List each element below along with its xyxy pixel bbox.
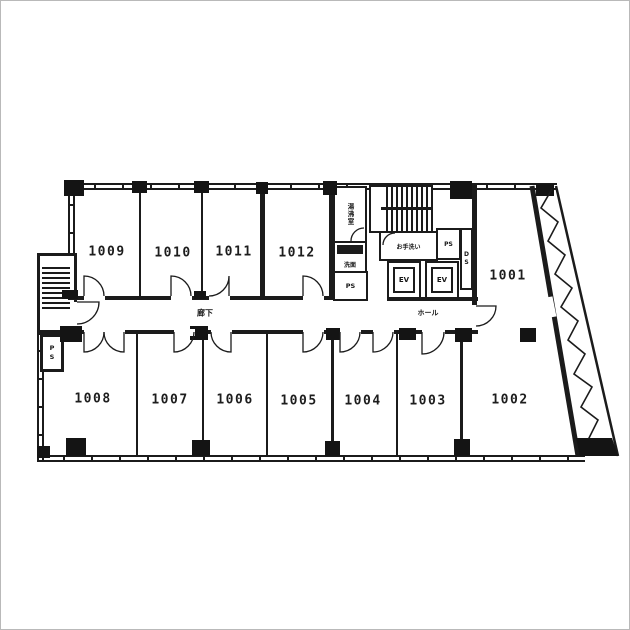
balcony-edge-outer — [556, 186, 618, 456]
room-label-1011: 1011 — [215, 245, 252, 260]
room-label-1010: 1010 — [154, 246, 191, 261]
room-label-1012: 1012 — [278, 246, 315, 261]
door-gaps — [72, 294, 445, 336]
room-label-1009: 1009 — [88, 245, 125, 260]
balcony-end-block — [576, 438, 618, 456]
room-label-1006: 1006 — [216, 393, 253, 408]
balcony-door-gap — [549, 297, 553, 317]
room-label-1003: 1003 — [409, 394, 446, 409]
room-label-1004: 1004 — [344, 394, 381, 409]
room-label-1007: 1007 — [151, 393, 188, 408]
room-label-1001: 1001 — [489, 269, 526, 284]
room-label-1008: 1008 — [74, 392, 111, 407]
room-label-1002: 1002 — [491, 393, 528, 408]
corridor-label: 廊下 — [197, 308, 213, 319]
plan-linework — [0, 0, 630, 630]
hall-label: ホール — [418, 308, 439, 318]
room-label-1005: 1005 — [280, 394, 317, 409]
floor-plan: 湯沸室 洗面 PS お手洗い PS DS EV EV PS — [0, 0, 630, 630]
